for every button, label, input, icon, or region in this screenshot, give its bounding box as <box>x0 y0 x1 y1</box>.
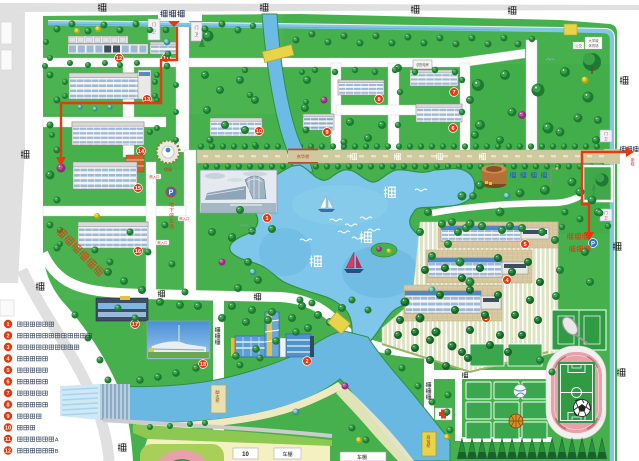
svg-text:7: 7 <box>452 90 455 96</box>
svg-text:5: 5 <box>7 368 10 374</box>
svg-text:15: 15 <box>135 186 141 192</box>
svg-text:10: 10 <box>256 129 262 135</box>
svg-text:17: 17 <box>132 322 138 328</box>
svg-text:门: 门 <box>152 21 156 27</box>
svg-text:地下停车场: 地下停车场 <box>168 201 174 230</box>
svg-text:励志桥: 励志桥 <box>215 389 221 404</box>
svg-text:1: 1 <box>7 322 10 328</box>
svg-text:10: 10 <box>5 426 11 432</box>
svg-text:大学城: 大学城 <box>588 38 599 43</box>
svg-text:侧入口: 侧入口 <box>149 174 159 179</box>
svg-text:6: 6 <box>451 126 454 132</box>
svg-text:体育场: 体育场 <box>588 43 599 48</box>
svg-text:16: 16 <box>135 249 141 255</box>
svg-text:B: B <box>55 449 59 455</box>
svg-text:2: 2 <box>305 359 308 365</box>
svg-text:P: P <box>591 242 595 248</box>
svg-text:12: 12 <box>5 449 11 455</box>
svg-text:卫: 卫 <box>195 32 199 37</box>
svg-text:9: 9 <box>325 130 328 136</box>
svg-text:8: 8 <box>7 403 10 409</box>
svg-text:A: A <box>55 437 59 443</box>
svg-text:5: 5 <box>523 242 526 248</box>
svg-text:18: 18 <box>200 362 206 368</box>
svg-text:6: 6 <box>7 380 10 386</box>
svg-text:9: 9 <box>7 414 10 420</box>
svg-text:侧入口: 侧入口 <box>179 216 189 221</box>
svg-text:7: 7 <box>7 391 10 397</box>
svg-text:车棚: 车棚 <box>282 451 292 458</box>
svg-text:1: 1 <box>265 216 268 222</box>
svg-text:侧入口: 侧入口 <box>157 240 167 245</box>
svg-text:车棚: 车棚 <box>357 454 367 461</box>
svg-text:P: P <box>169 190 174 197</box>
svg-text:4: 4 <box>7 357 10 363</box>
svg-text:11: 11 <box>5 437 11 443</box>
svg-text:公交: 公交 <box>575 43 582 48</box>
svg-text:总配电房: 总配电房 <box>416 62 429 67</box>
svg-text:8: 8 <box>377 97 380 103</box>
svg-text:喷泉: 喷泉 <box>164 166 173 173</box>
svg-text:参观: 参观 <box>631 157 636 167</box>
svg-text:14: 14 <box>138 149 145 155</box>
svg-text:尚贤桥: 尚贤桥 <box>426 434 432 449</box>
svg-text:门: 门 <box>195 24 199 30</box>
svg-text:12: 12 <box>116 56 122 62</box>
svg-text:3: 3 <box>7 345 10 351</box>
svg-text:东华桥: 东华桥 <box>297 153 310 160</box>
svg-text:2: 2 <box>7 334 10 340</box>
svg-text:10: 10 <box>242 452 249 458</box>
